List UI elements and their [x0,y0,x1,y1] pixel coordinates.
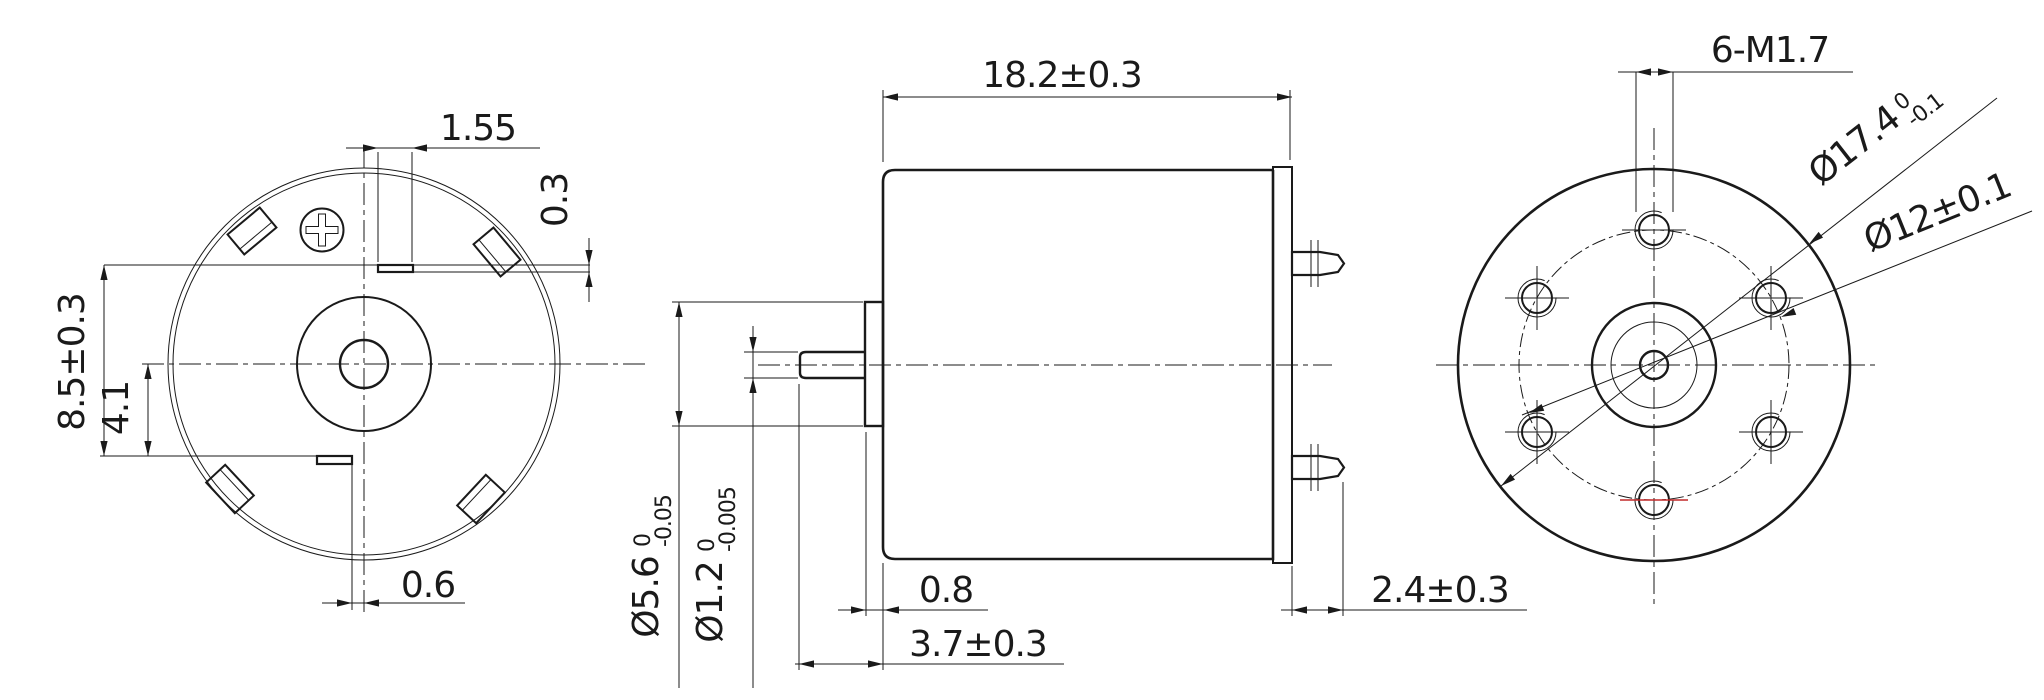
terminal-upper [1292,240,1344,287]
screw-head-icon [301,209,344,252]
dim-boss-dia: Ø5.6 0 -0.05 [626,302,863,688]
dim-shaft-dia: Ø1.2 0 -0.005 [690,326,798,688]
drawing-sheet: 1.55 0.3 8.5±0.3 4.1 0.6 [0,0,2044,700]
dim-slot-depth-label: 0.3 [535,173,576,227]
side-view: 18.2±0.3 Ø5.6 0 -0.05 Ø1.2 0 -0 [626,55,1527,688]
rim-tab-upper-right [474,228,521,277]
dim-terminal-length: 2.4±0.3 [1281,482,1527,616]
mount-hole-lower-right [1739,400,1803,464]
dim-shaft-dia-label: Ø1.2 [690,561,731,643]
dim-shaft-length-label: 3.7±0.3 [909,624,1047,665]
dim-outer-dia-label: Ø17.4 [1801,98,1908,194]
bearing-boss [865,302,883,426]
dim-slot-depth: 0.3 [535,173,593,302]
rim-tab-lower-left [206,465,254,513]
dim-slot-span-label: 8.5±0.3 [52,293,93,431]
dim-shaft-dia-lower-tol: -0.005 [716,487,741,552]
lower-slot [317,456,352,464]
mount-hole-upper-right [1739,266,1803,330]
dim-body-length: 18.2±0.3 [883,55,1292,162]
dim-outer-dia: Ø17.4 0 -0.1 [1499,70,1997,489]
dim-mount-holes: 6-M1.7 [1618,30,1853,212]
dim-boss-dia-lower-tol: -0.05 [652,495,677,547]
motor-drawing-canvas: 1.55 0.3 8.5±0.3 4.1 0.6 [0,0,2044,700]
mount-hole-upper-left [1505,266,1569,330]
dim-mount-holes-label: 6-M1.7 [1711,30,1829,71]
dim-terminal-length-label: 2.4±0.3 [1371,570,1509,611]
dim-center-to-slot-label: 4.1 [96,381,137,435]
dim-bolt-circle: Ø12±0.1 [1522,165,2032,417]
rim-tab-lower-right [457,475,505,523]
back-view: 6-M1.7 Ø17.4 0 -0.1 Ø12±0.1 [1436,30,2032,606]
dim-slot-offset: 0.6 [322,565,465,607]
dim-bolt-circle-label: Ø12±0.1 [1858,165,2017,261]
dim-shaft-length: 3.7±0.3 [795,384,1064,670]
upper-slot [378,265,413,272]
terminal-lower [1292,444,1344,491]
dim-body-length-label: 18.2±0.3 [982,55,1142,96]
dim-slot-offset-label: 0.6 [401,565,455,606]
dim-slot-width-label: 1.55 [440,108,516,149]
rim-tab-upper-left [228,208,277,255]
front-view: 1.55 0.3 8.5±0.3 4.1 0.6 [52,108,648,612]
dim-boss-dia-label: Ø5.6 [626,556,667,638]
dim-boss-length-label: 0.8 [919,570,973,611]
dim-outer-dia-lower-tol: -0.1 [1902,89,1948,133]
